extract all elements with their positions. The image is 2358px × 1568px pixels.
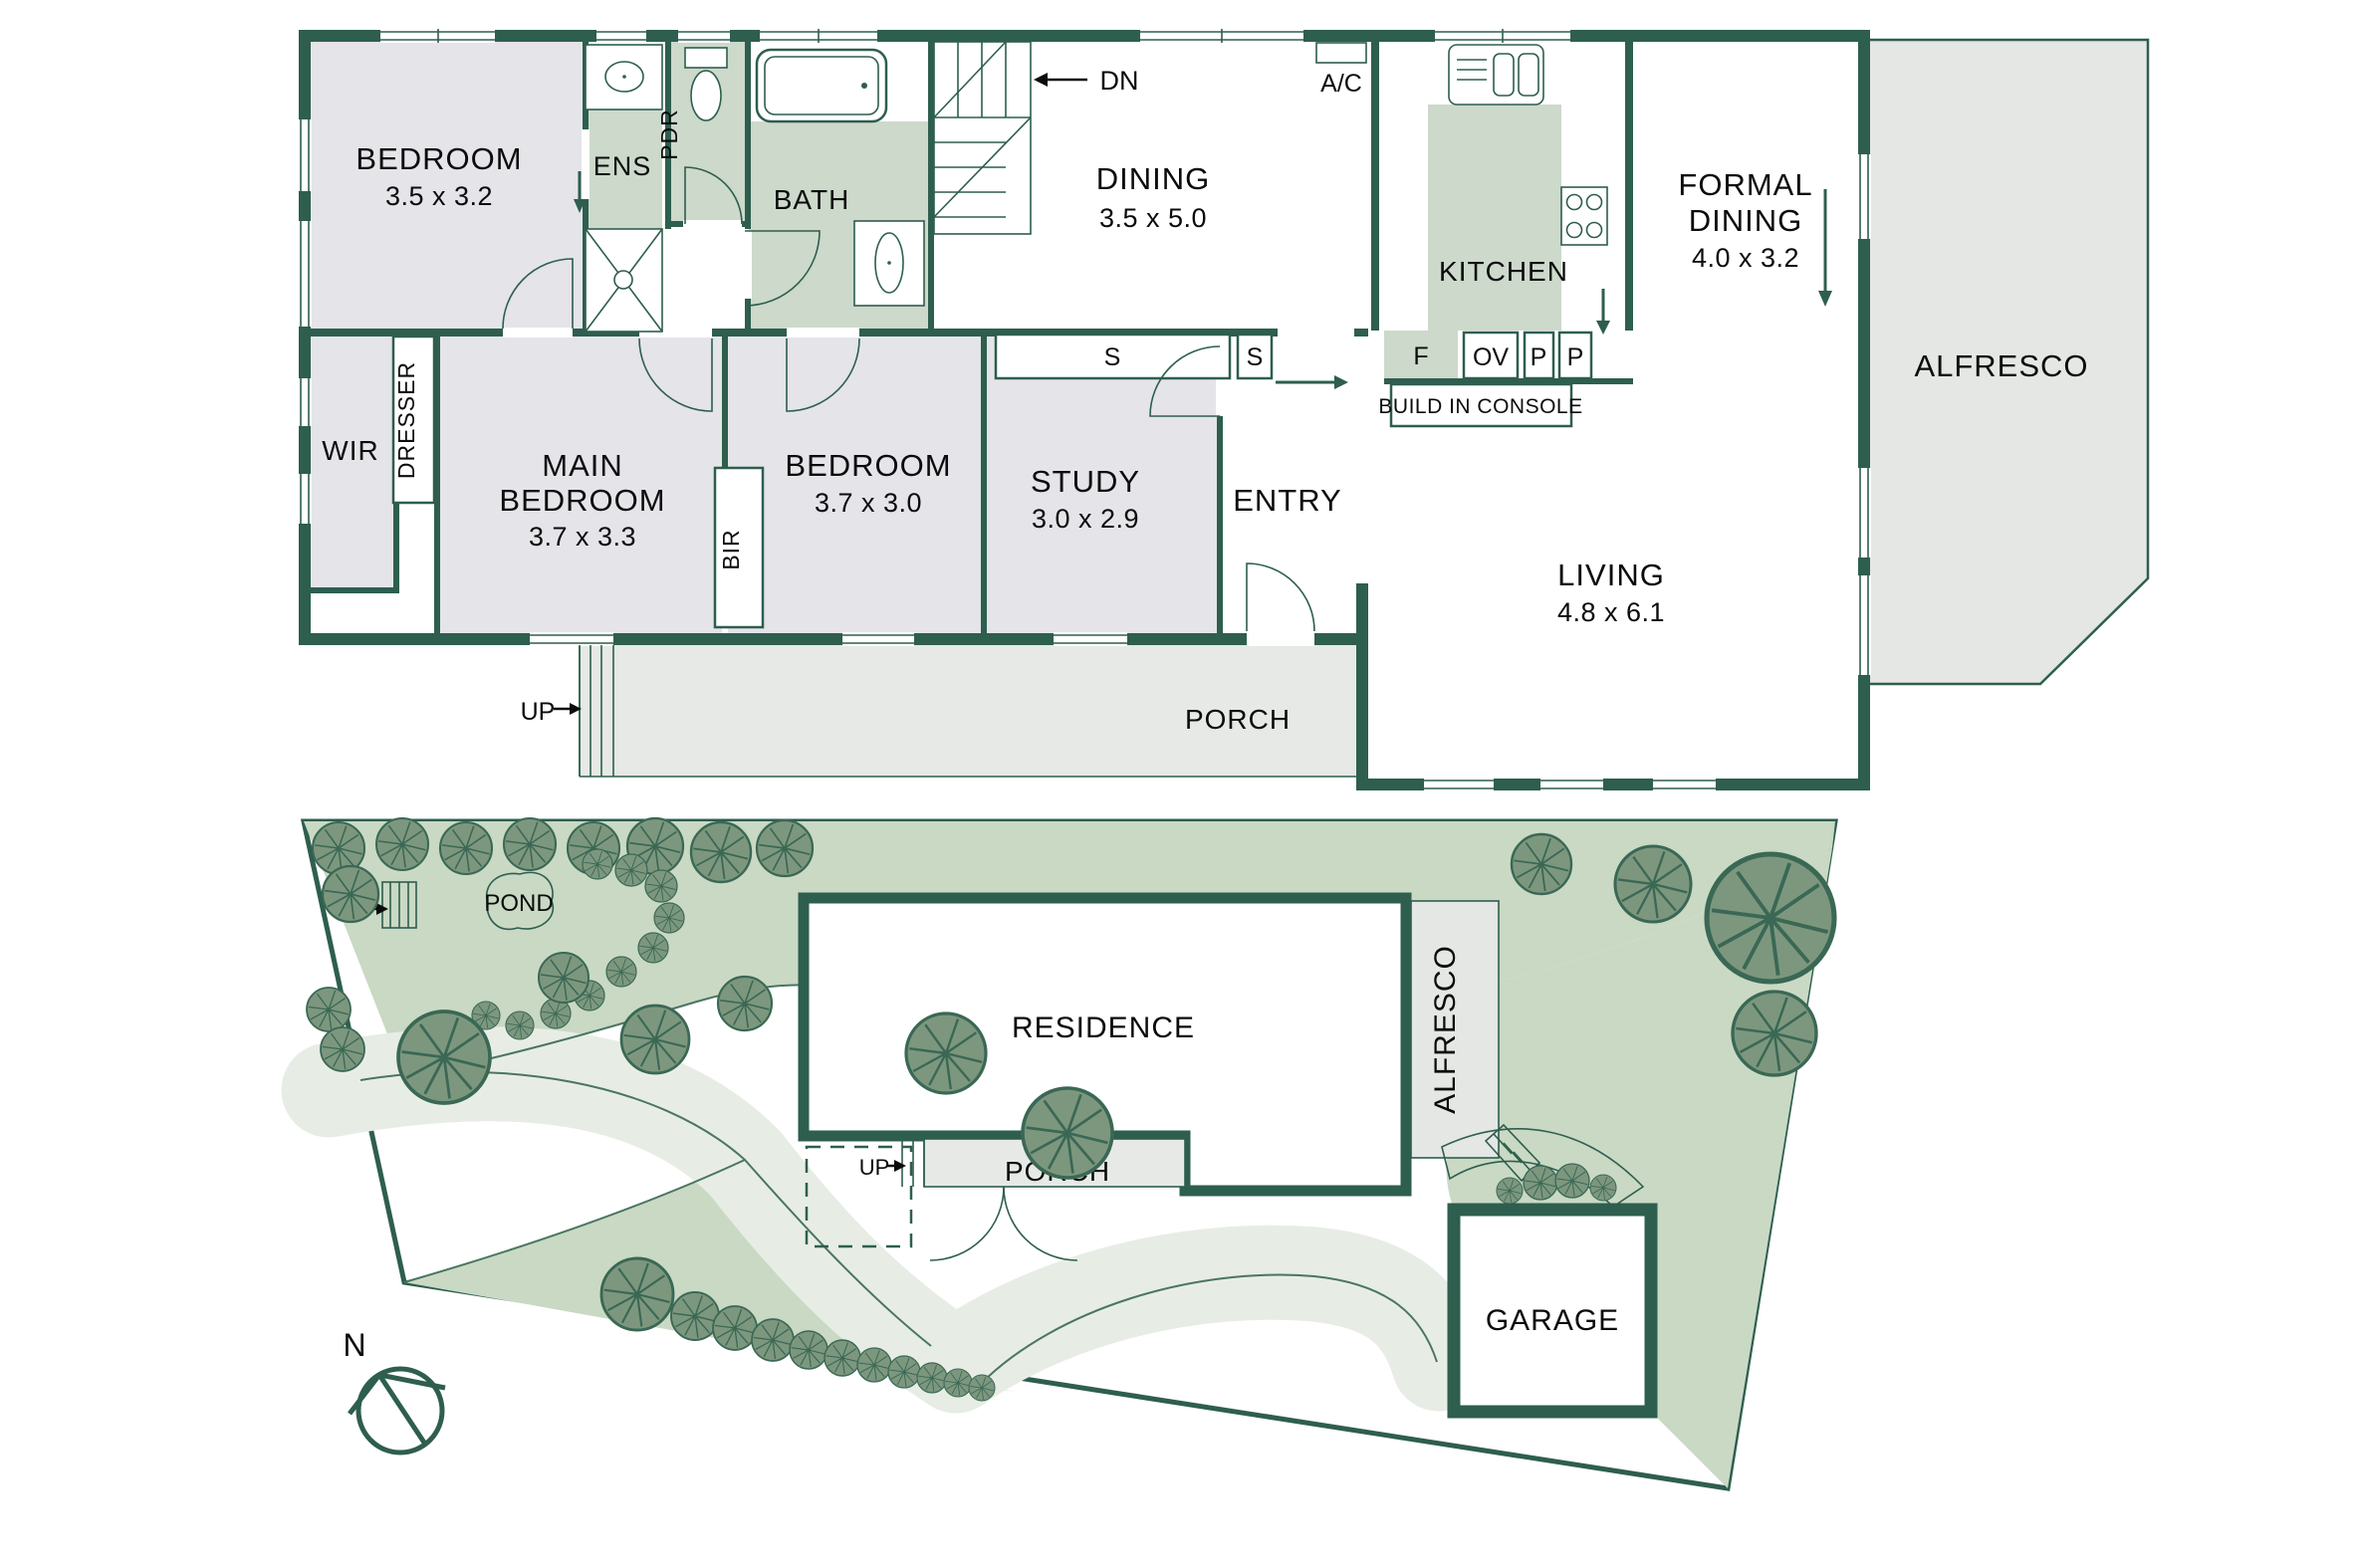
wall-bath-lower <box>745 299 751 334</box>
pond-label: POND <box>484 890 553 917</box>
wall-right <box>1858 30 1870 790</box>
ens-vanity <box>586 45 662 110</box>
main-bedroom-label-2: BEDROOM <box>499 483 665 518</box>
floorplan-page: POND UP RESIDENCE ALFRESC <box>0 0 2358 1568</box>
bath-vanity <box>854 221 924 306</box>
stairs <box>934 42 1031 234</box>
formal-dining-dims: 4.0 x 3.2 <box>1692 243 1799 273</box>
entry-label: ENTRY <box>1233 483 1342 518</box>
bedroom1-dims: 3.5 x 3.2 <box>385 181 493 211</box>
wall-kitchen-formal <box>1625 30 1633 331</box>
living-label: LIVING <box>1557 558 1665 592</box>
formal-dining-label-1: FORMAL <box>1678 167 1812 202</box>
oven-label: OV <box>1473 343 1509 371</box>
bedroom2-dims: 3.7 x 3.0 <box>815 488 922 518</box>
wall-pdr-bath <box>745 42 751 229</box>
wall-bed2-study <box>981 336 987 633</box>
site-up-porch-label: UP <box>859 1155 890 1180</box>
wall-top <box>299 30 1870 42</box>
floor-plan: ALFRESCO <box>298 29 2148 791</box>
site-garage-label: GARAGE <box>1486 1304 1619 1337</box>
site-alfresco-label: ALFRESCO <box>1429 945 1462 1114</box>
wall-living-left <box>1356 633 1368 790</box>
site-door-arc-left <box>930 1187 1004 1260</box>
kitchen-label: KITCHEN <box>1439 256 1568 287</box>
bedroom2-label: BEDROOM <box>785 448 951 483</box>
kitchen-sink <box>1449 45 1543 105</box>
bath-label: BATH <box>774 184 850 215</box>
console-label: BUILD IN CONSOLE <box>1378 395 1582 418</box>
kitchen-bench <box>1428 105 1561 331</box>
main-bedroom-dims: 3.7 x 3.3 <box>529 522 636 552</box>
formal-dining-label-2: DINING <box>1689 203 1803 238</box>
storage-small-label: S <box>1247 343 1264 371</box>
dining-label: DINING <box>1096 161 1211 196</box>
wall-bottom-bedrooms <box>299 633 1368 645</box>
hall-floor <box>665 227 745 334</box>
site-plan: POND UP RESIDENCE ALFRESC <box>304 818 1835 1488</box>
pantry-label-2: P <box>1567 343 1584 371</box>
bathtub <box>757 50 886 121</box>
wall-entry-stub <box>1356 583 1368 645</box>
compass: N <box>343 1327 445 1453</box>
wall-main-bed2 <box>722 336 728 468</box>
study-dims: 3.0 x 2.9 <box>1032 504 1139 534</box>
wir-label: WIR <box>322 435 378 466</box>
living-dims: 4.8 x 6.1 <box>1557 597 1665 627</box>
wall-wir-bottom <box>311 587 399 593</box>
porch-label: PORCH <box>1185 704 1291 735</box>
bedroom1-label: BEDROOM <box>355 141 522 176</box>
fridge-label: F <box>1413 342 1428 370</box>
site-door-arc-right <box>1004 1187 1077 1260</box>
north-label: N <box>343 1327 365 1363</box>
site-residence-label: RESIDENCE <box>1012 1011 1195 1044</box>
ens-label: ENS <box>593 151 652 181</box>
pdr-label: PDR <box>656 109 682 160</box>
stairs-dn-label: DN <box>1100 66 1139 96</box>
main-bedroom-label-1: MAIN <box>542 448 623 483</box>
pantry-label-1: P <box>1531 343 1547 371</box>
dining-dims: 3.5 x 5.0 <box>1099 203 1207 233</box>
cooktop <box>1561 187 1607 245</box>
alfresco-label: ALFRESCO <box>1914 348 2088 383</box>
plan-canvas: POND UP RESIDENCE ALFRESC <box>0 0 2358 1568</box>
ac-unit <box>1316 43 1366 63</box>
dresser-label: DRESSER <box>393 361 419 479</box>
study-label: STUDY <box>1031 464 1140 499</box>
wall-dining-kitchen <box>1371 42 1379 331</box>
bir-label: BIR <box>718 529 744 569</box>
storage-long-label: S <box>1104 343 1121 371</box>
wall-bath-stairs <box>928 42 934 334</box>
porch-up-label: UP <box>521 698 556 726</box>
ac-label: A/C <box>1320 70 1362 98</box>
shower <box>586 229 662 332</box>
bedroom2-floor <box>728 336 981 633</box>
